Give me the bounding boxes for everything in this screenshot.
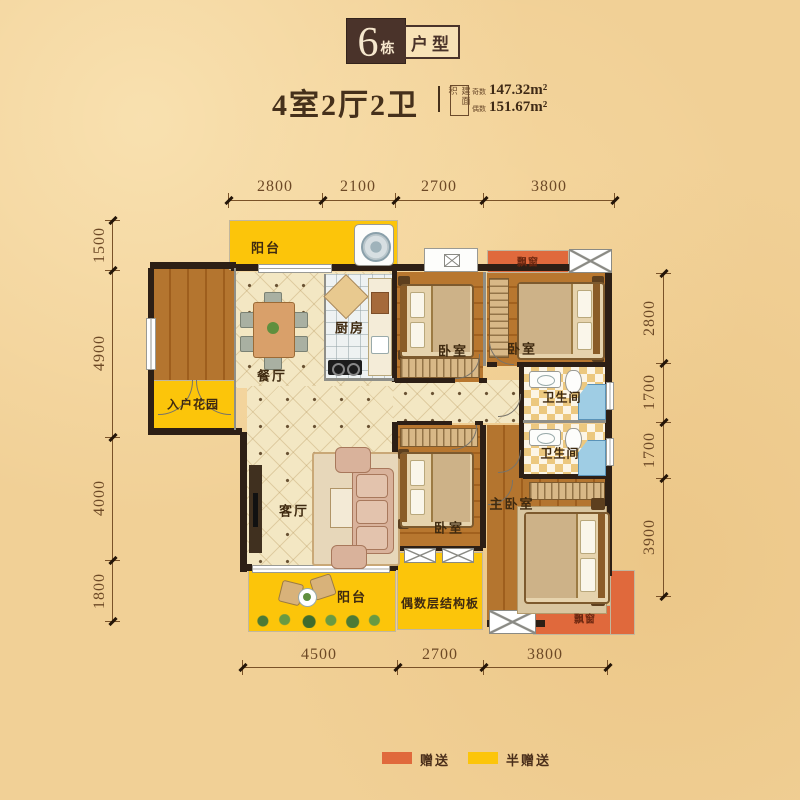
partition-kitchen-bottom — [324, 378, 394, 381]
area-box-label: 建面积 — [450, 85, 469, 116]
type-badge: 户型 — [404, 25, 460, 59]
wall-bedroom-a-bottom-2 — [479, 378, 487, 383]
room-label-bath-a: 卫生间 — [542, 389, 581, 406]
legend-half-gift-swatch — [468, 752, 498, 764]
building-badge: 6 栋 — [346, 18, 406, 64]
wall-entry-top — [150, 262, 236, 269]
dim-right-4: 3900 — [641, 509, 659, 565]
area-1-prefix: 奇数 — [472, 87, 486, 97]
sink-icon — [529, 371, 561, 388]
room-label-bedroom-a: 卧室 — [438, 341, 468, 360]
stove-icon — [328, 360, 362, 375]
dim-bottom-2: 2700 — [410, 646, 470, 664]
plant-icon — [252, 614, 388, 628]
dim-bottom-3: 3800 — [515, 646, 575, 664]
dim-left-4: 1800 — [91, 563, 109, 619]
window-icon — [258, 264, 332, 273]
dimension-left: 1500 4900 4000 1800 — [96, 220, 130, 622]
window-icon — [442, 548, 474, 563]
area-1-value: 147.32m² — [489, 82, 547, 99]
room-label-living: 客厅 — [279, 501, 309, 520]
wall-bedroom-a-bottom-1 — [395, 378, 455, 383]
legend-half-gift-label: 半赠送 — [506, 750, 551, 769]
room-label-bedroom-b: 卧室 — [507, 339, 537, 358]
shower-icon — [578, 384, 606, 420]
room-label-master: 主卧室 — [489, 494, 534, 513]
partition-dining-left — [234, 268, 236, 380]
shower-icon — [578, 440, 606, 476]
room-label-bedroom-c: 卧室 — [434, 518, 464, 537]
legend-gift-swatch — [382, 752, 412, 764]
wall-living-left — [240, 432, 247, 572]
dim-top-2: 2100 — [328, 178, 388, 196]
area-line-2: 偶数 151.67m² — [472, 99, 547, 116]
room-label-bay-top: 飘窗 — [517, 254, 539, 269]
window-icon — [146, 318, 156, 370]
bay-window-side-zone — [610, 570, 635, 635]
room-label-kitchen: 厨房 — [335, 318, 365, 337]
partition-garden-right — [234, 380, 236, 430]
dim-top-3: 2700 — [409, 178, 469, 196]
window-icon — [404, 548, 436, 563]
dimension-right: 2800 1700 1700 3900 — [648, 273, 682, 597]
ac-platform-icon — [424, 248, 478, 272]
room-label-entry-garden: 入户花园 — [167, 396, 219, 413]
room-label-slab: 偶数层结构板 — [401, 595, 479, 612]
area-2-prefix: 偶数 — [472, 104, 486, 114]
type-badge-label: 户型 — [411, 30, 453, 55]
dimension-top: 2800 2100 2700 3800 — [228, 180, 615, 212]
wall-entry-left-upper — [148, 268, 154, 318]
slab-zone — [397, 552, 483, 630]
dim-top-4: 3800 — [519, 178, 579, 196]
partition-bedrooms-ab — [483, 272, 486, 366]
patio-set-icon — [248, 570, 394, 630]
dim-left-3: 4000 — [91, 470, 109, 526]
dim-left-2: 4900 — [91, 325, 109, 381]
dim-right-2: 1700 — [641, 364, 659, 420]
window-icon — [606, 382, 614, 410]
page-title: 4室2厅2卫 — [272, 80, 419, 124]
dim-top-1: 2800 — [245, 178, 305, 196]
dining-table-icon — [238, 290, 308, 370]
area-2-value: 151.67m² — [489, 99, 547, 116]
room-label-dining: 餐厅 — [257, 366, 287, 385]
building-number: 6 — [358, 23, 379, 63]
sofa-icon — [247, 445, 393, 565]
room-label-balcony-bottom: 阳台 — [337, 587, 367, 606]
floor-plan-page: 6 栋 户型 4室2厅2卫 建面积 奇数 147.32m² 偶数 151.67m… — [0, 0, 800, 800]
dimension-bottom: 4500 2700 3800 — [242, 646, 608, 678]
sink-icon — [529, 429, 561, 446]
dim-bottom-1: 4500 — [289, 646, 349, 664]
wall-garden-bottom — [148, 428, 242, 435]
dim-left-1: 1500 — [91, 217, 109, 273]
tv-cabinet-icon — [249, 465, 262, 553]
legend-gift-label: 赠送 — [420, 750, 450, 769]
room-label-bath-b: 卫生间 — [540, 445, 579, 462]
dim-right-3: 1700 — [641, 422, 659, 478]
wall-entry-left-lower — [148, 368, 154, 430]
entry-room-floor — [152, 268, 236, 382]
ac-platform-icon — [569, 249, 612, 273]
window-icon — [606, 438, 614, 466]
title-divider — [438, 86, 440, 112]
area-line-1: 奇数 147.32m² — [472, 82, 547, 99]
room-label-bay-bottom: 飘窗 — [574, 611, 596, 626]
dim-right-1: 2800 — [641, 290, 659, 346]
room-label-balcony-top: 阳台 — [251, 238, 281, 257]
building-unit-label: 栋 — [381, 38, 395, 58]
washing-machine-icon — [354, 224, 394, 266]
